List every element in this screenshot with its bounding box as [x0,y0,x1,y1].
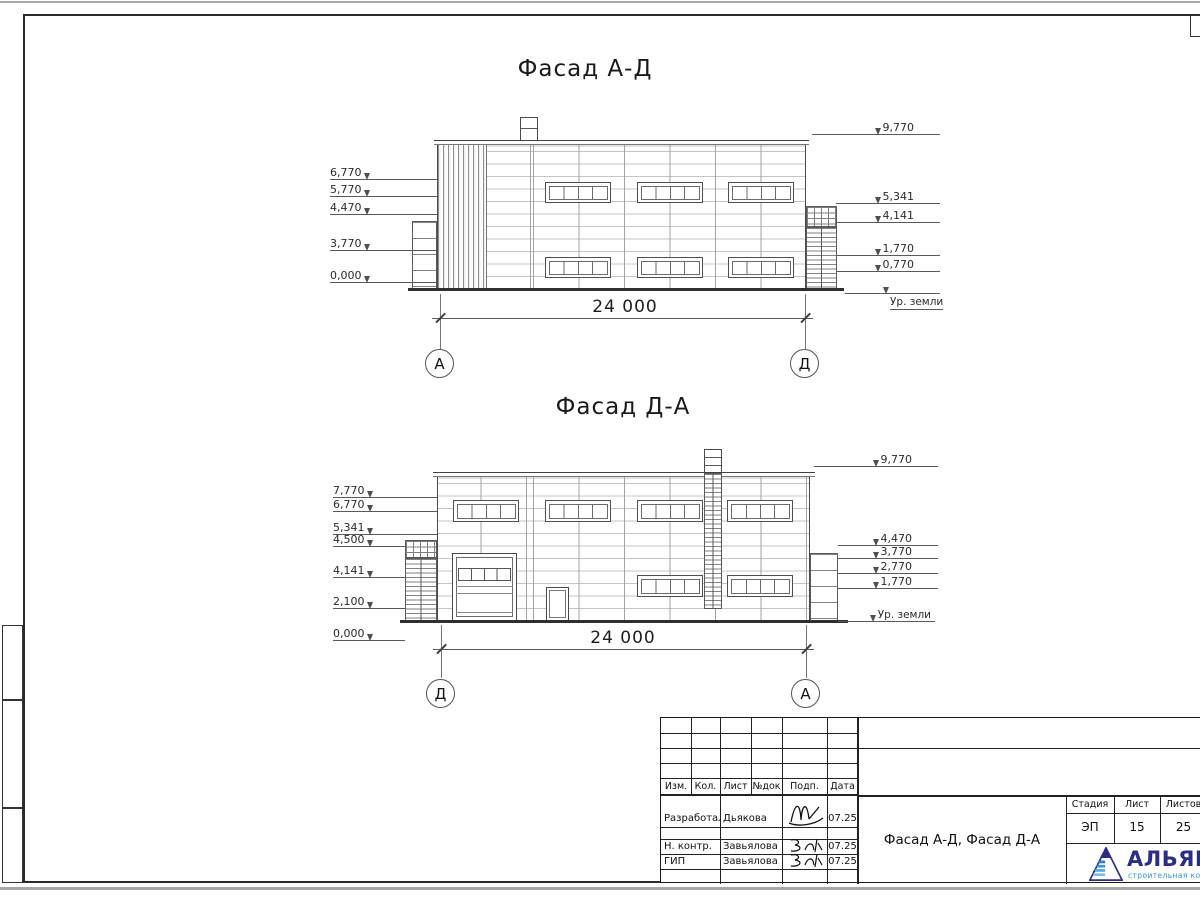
elevation-arrow-icon [875,128,881,135]
elevation-mark: 4,141 [333,564,405,578]
facade2-window [637,575,703,597]
dimension-line [433,649,814,650]
facade2-ladder-line [705,457,721,458]
elevation-arrow-icon [873,460,879,467]
facade1-right-stair-railing [806,206,837,227]
company-name: АЛЬЯНС [1127,847,1200,871]
elevation-arrow-icon [367,571,373,578]
page-top-edge [0,1,1200,3]
elevation-arrow-icon [367,491,373,498]
extension-line [806,625,807,662]
elevation-arrow-icon [364,173,370,180]
drawing-sheet: Фасад А-Д 6,770 5,770 4,470 3,770 0,000 … [0,0,1200,900]
col-list: Лист [720,778,751,794]
elevation-mark: 2,100 [333,595,405,609]
facade1-ground-line [408,288,844,291]
name-dyakova: Дьякова [723,811,781,826]
sheet-label: Лист [1114,797,1160,811]
elevation-arrow-icon [367,540,373,547]
elevation-mark: 6,770 [333,498,437,512]
axis-bubble: Д [426,679,455,708]
date: 07.25 [827,854,858,869]
facade2-window [727,575,793,597]
facade2-fire-ladder [704,473,722,609]
elevation-mark: 7,770 [333,484,437,498]
ground-level-label: Ур. земли [838,608,935,622]
elevation-arrow-icon [875,249,881,256]
elevation-mark: 0,000 [330,269,437,283]
facade2-ground-line [400,620,848,623]
elevation-mark: 9,770 [814,453,938,467]
elevation-mark: 5,341 [836,190,940,204]
facade1-chimney [520,117,538,141]
extension-line [805,294,806,332]
elevation-arrow-icon [873,582,879,589]
col-izm: Изм. [661,778,691,794]
facade2-window [453,500,519,522]
dimension-text: 24 000 [560,297,690,317]
facade1-window [637,257,703,278]
stage-value: ЭП [1066,814,1114,840]
elevation-arrow-icon [875,197,881,204]
axis-bubble: А [425,349,454,378]
elevation-mark: 0,000 [333,627,405,641]
garage-door-window-band [458,568,511,581]
axis-leader [806,661,807,678]
ground-level-line [845,293,940,294]
elevation-mark: 4,470 [838,532,938,546]
axis-leader [441,661,442,678]
extension-line [441,625,442,662]
binding-cell-1 [2,625,23,700]
elevation-arrow-icon [367,505,373,512]
axis-leader [440,332,441,349]
elevation-arrow-icon [364,208,370,215]
document-title: Фасад А-Д, Фасад Д-А [858,795,1066,884]
page-bottom-edge [0,887,1200,890]
elevation-arrow-icon [364,276,370,283]
elevation-mark: 4,470 [330,201,437,215]
facade2-title: Фасад Д-А [523,394,723,420]
facade1-window [728,182,794,203]
col-podp: Подп. [782,778,827,794]
elevation-arrow-icon [367,634,373,641]
facade2-window [637,500,703,522]
facade2-right-porch [810,553,838,621]
facade2-garage-door [452,553,517,621]
binding-cell-3 [2,808,23,883]
facade1-window [637,182,703,203]
facade2-ladder-line [705,465,721,466]
elevation-arrow-icon [873,552,879,559]
garage-panel-line [456,593,513,594]
sheet-value: 15 [1114,814,1160,840]
elevation-mark: 3,770 [838,545,938,559]
facade2-window [545,500,611,522]
elevation-mark: 5,770 [330,183,437,197]
axis-bubble: А [791,679,820,708]
elevation-mark: 2,770 [838,560,938,574]
title-block: Изм. Кол. Лист №док Подп. Дата Разработа… [660,717,1200,883]
elevation-arrow-icon [883,287,889,294]
elevation-mark: 4,500 [333,533,405,547]
elevation-arrow-icon [367,602,373,609]
name-zavyalova: Завьялова [723,854,781,869]
signature [786,852,826,869]
facade1-title: Фасад А-Д [485,56,685,82]
company-subtitle: строительная компания [1128,870,1200,880]
facade1-right-stair [806,227,837,289]
stage-label: Стадия [1066,797,1114,811]
signature [786,798,826,828]
elevation-mark: 9,770 [812,121,940,135]
axis-leader [805,332,806,349]
facade2-window [727,500,793,522]
extension-line [440,294,441,332]
facade1-window [545,182,611,203]
elevation-mark: 1,770 [836,242,940,256]
facade2-ladder-top [704,449,722,473]
facade1-cladding-stripes [438,145,487,288]
ground-level-label: Ур. земли [890,296,943,310]
garage-panel-line [456,586,513,587]
corner-stamp-box [1190,15,1200,37]
facade1-window [545,257,611,278]
sheets-value: 25 [1160,814,1200,840]
axis-bubble: Д [790,349,819,378]
elevation-mark: 3,770 [330,237,437,251]
elevation-arrow-icon [875,265,881,272]
role-nkontr: Н. контр. [664,839,720,854]
date: 07.25 [827,839,858,854]
facade1-chimney-line [521,128,537,129]
company-logo-icon [1089,847,1123,881]
sheets-label: Листов [1160,797,1200,811]
garage-panel-line [456,612,513,613]
date: 07.25 [827,811,858,826]
elevation-arrow-icon [364,244,370,251]
elevation-arrow-icon [875,216,881,223]
facade1-window [728,257,794,278]
col-ndok: №док [751,778,782,794]
elevation-mark: 0,770 [836,258,940,272]
elevation-mark: 6,770 [330,166,437,180]
col-kol: Кол. [691,778,720,794]
elevation-arrow-icon [873,567,879,574]
dimension-line [432,318,813,319]
col-data: Дата [827,778,858,794]
elevation-mark: 1,770 [838,575,938,589]
facade2-left-stair [405,558,437,622]
dimension-text: 24 000 [558,628,688,648]
role-gip: ГИП [664,854,720,869]
elevation-arrow-icon [870,615,876,622]
facade2-entrance-door [546,587,569,621]
facade2-left-stair-railing [405,540,437,558]
binding-cell-2 [2,700,23,808]
role-razrabotal: Разработал [664,811,720,826]
name-zavyalova: Завьялова [723,839,781,854]
elevation-mark: 4,141 [836,209,940,223]
elevation-arrow-icon [364,190,370,197]
